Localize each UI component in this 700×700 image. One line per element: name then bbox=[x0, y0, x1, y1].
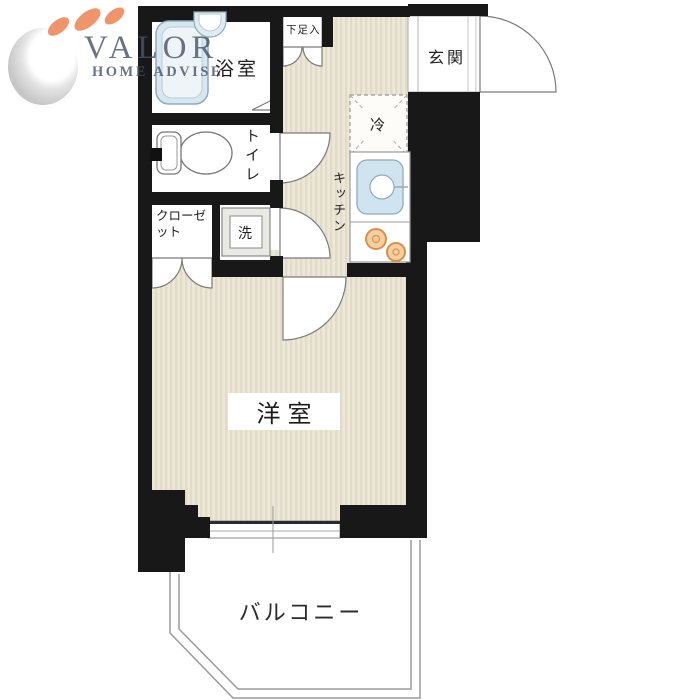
room-label-closet: クローゼット bbox=[156, 209, 206, 240]
room-label-balcony: バルコニー bbox=[225, 595, 377, 627]
room-label-western-room: 洋室 bbox=[250, 394, 319, 429]
logo-title: VALOR bbox=[84, 30, 218, 67]
floorplan-page: 浴室 トイレ クローゼット 洗 キッチン 冷 下足入 玄関 洋室 バルコニー V… bbox=[0, 0, 700, 700]
wall bbox=[270, 6, 283, 117]
wall bbox=[283, 6, 410, 17]
room-label-refrigerator: 冷 bbox=[370, 114, 385, 135]
room-label-toilet: トイレ bbox=[241, 128, 262, 185]
wall bbox=[340, 505, 407, 538]
room-label-entrance: 玄関 bbox=[428, 44, 466, 68]
wall bbox=[270, 117, 283, 133]
logo-grain-icon bbox=[102, 4, 128, 28]
western-room-floor bbox=[152, 250, 408, 521]
wall bbox=[212, 260, 283, 277]
wall bbox=[212, 205, 220, 260]
sink-faucet bbox=[370, 175, 394, 199]
wall bbox=[408, 4, 488, 16]
logo-sphere-icon bbox=[8, 28, 78, 105]
western-room-label-band: 洋室 bbox=[228, 393, 340, 430]
valor-logo: VALOR HOME ADVISE bbox=[0, 0, 240, 115]
wall bbox=[185, 505, 198, 538]
wall bbox=[138, 490, 185, 572]
stove-burner-2 bbox=[387, 243, 405, 261]
room-label-washing-machine: 洗 bbox=[238, 223, 252, 243]
logo-subtitle: HOME ADVISE bbox=[92, 64, 223, 81]
stove-burner-1 bbox=[366, 229, 386, 249]
entrance-door-swing bbox=[480, 16, 556, 92]
wall bbox=[347, 263, 410, 277]
wall bbox=[408, 92, 480, 242]
wall bbox=[406, 242, 427, 538]
room-label-kitchen: キッチン bbox=[329, 171, 348, 235]
wall bbox=[138, 192, 283, 205]
room-label-shoe-cabinet: 下足入 bbox=[286, 22, 321, 37]
wall bbox=[322, 13, 333, 47]
wall bbox=[198, 517, 210, 538]
toilet-flush-handle bbox=[150, 148, 162, 161]
toilet-bowl bbox=[180, 132, 232, 174]
